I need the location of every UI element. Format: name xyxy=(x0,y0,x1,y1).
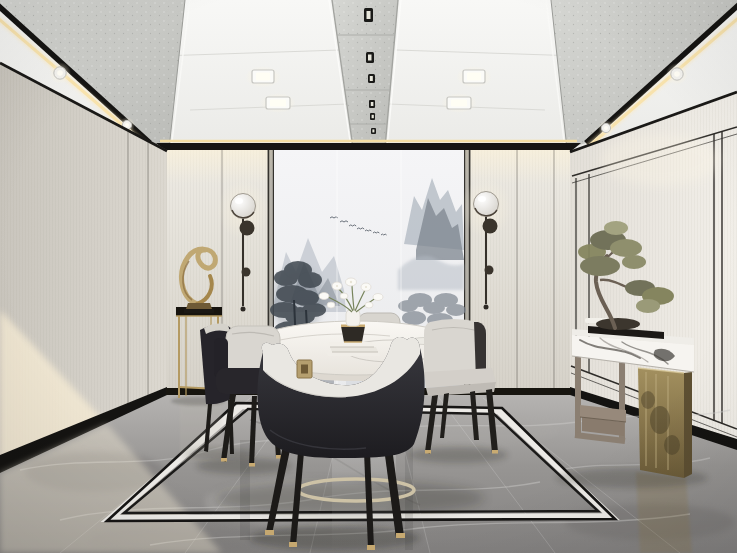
vignette xyxy=(0,0,737,553)
dining-room-photo xyxy=(0,0,737,553)
